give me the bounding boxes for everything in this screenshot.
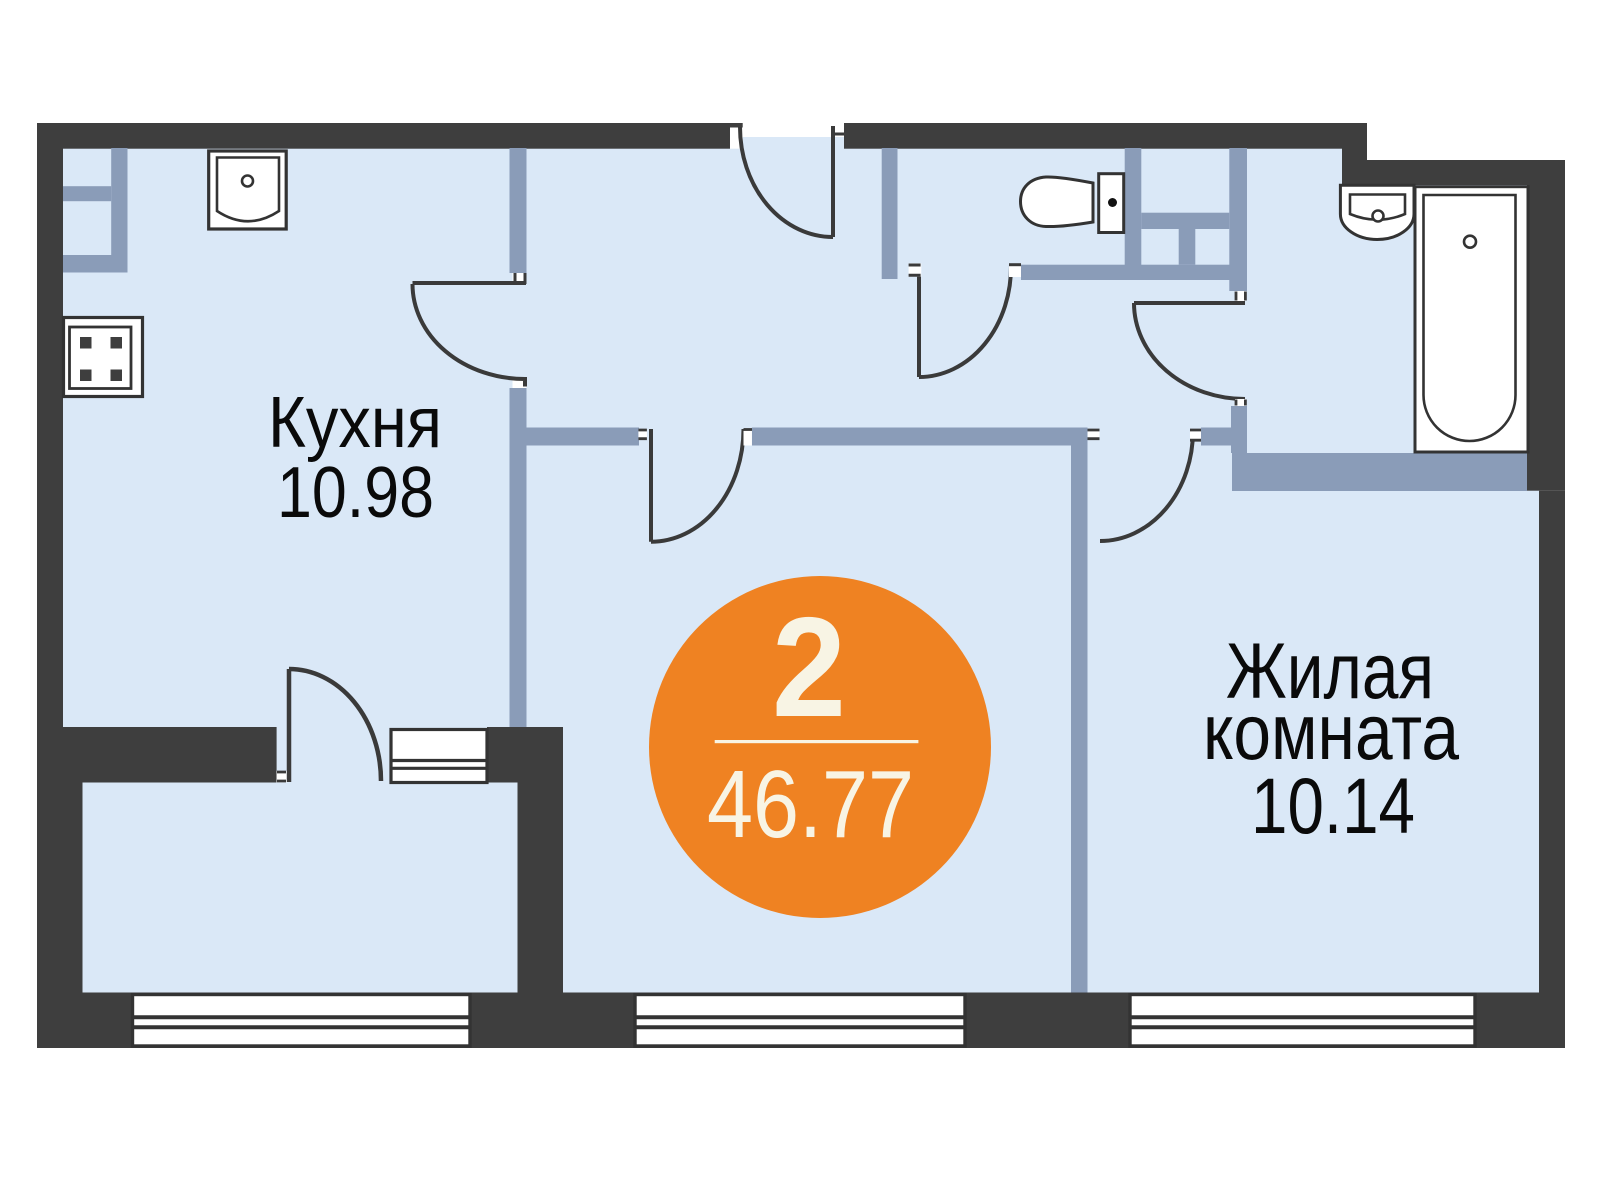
svg-text:46.77: 46.77 (707, 751, 914, 858)
svg-text:2: 2 (772, 588, 846, 747)
svg-text:10.14: 10.14 (1251, 761, 1415, 850)
svg-text:Кухня: Кухня (268, 383, 442, 463)
svg-text:10.98: 10.98 (277, 453, 434, 533)
